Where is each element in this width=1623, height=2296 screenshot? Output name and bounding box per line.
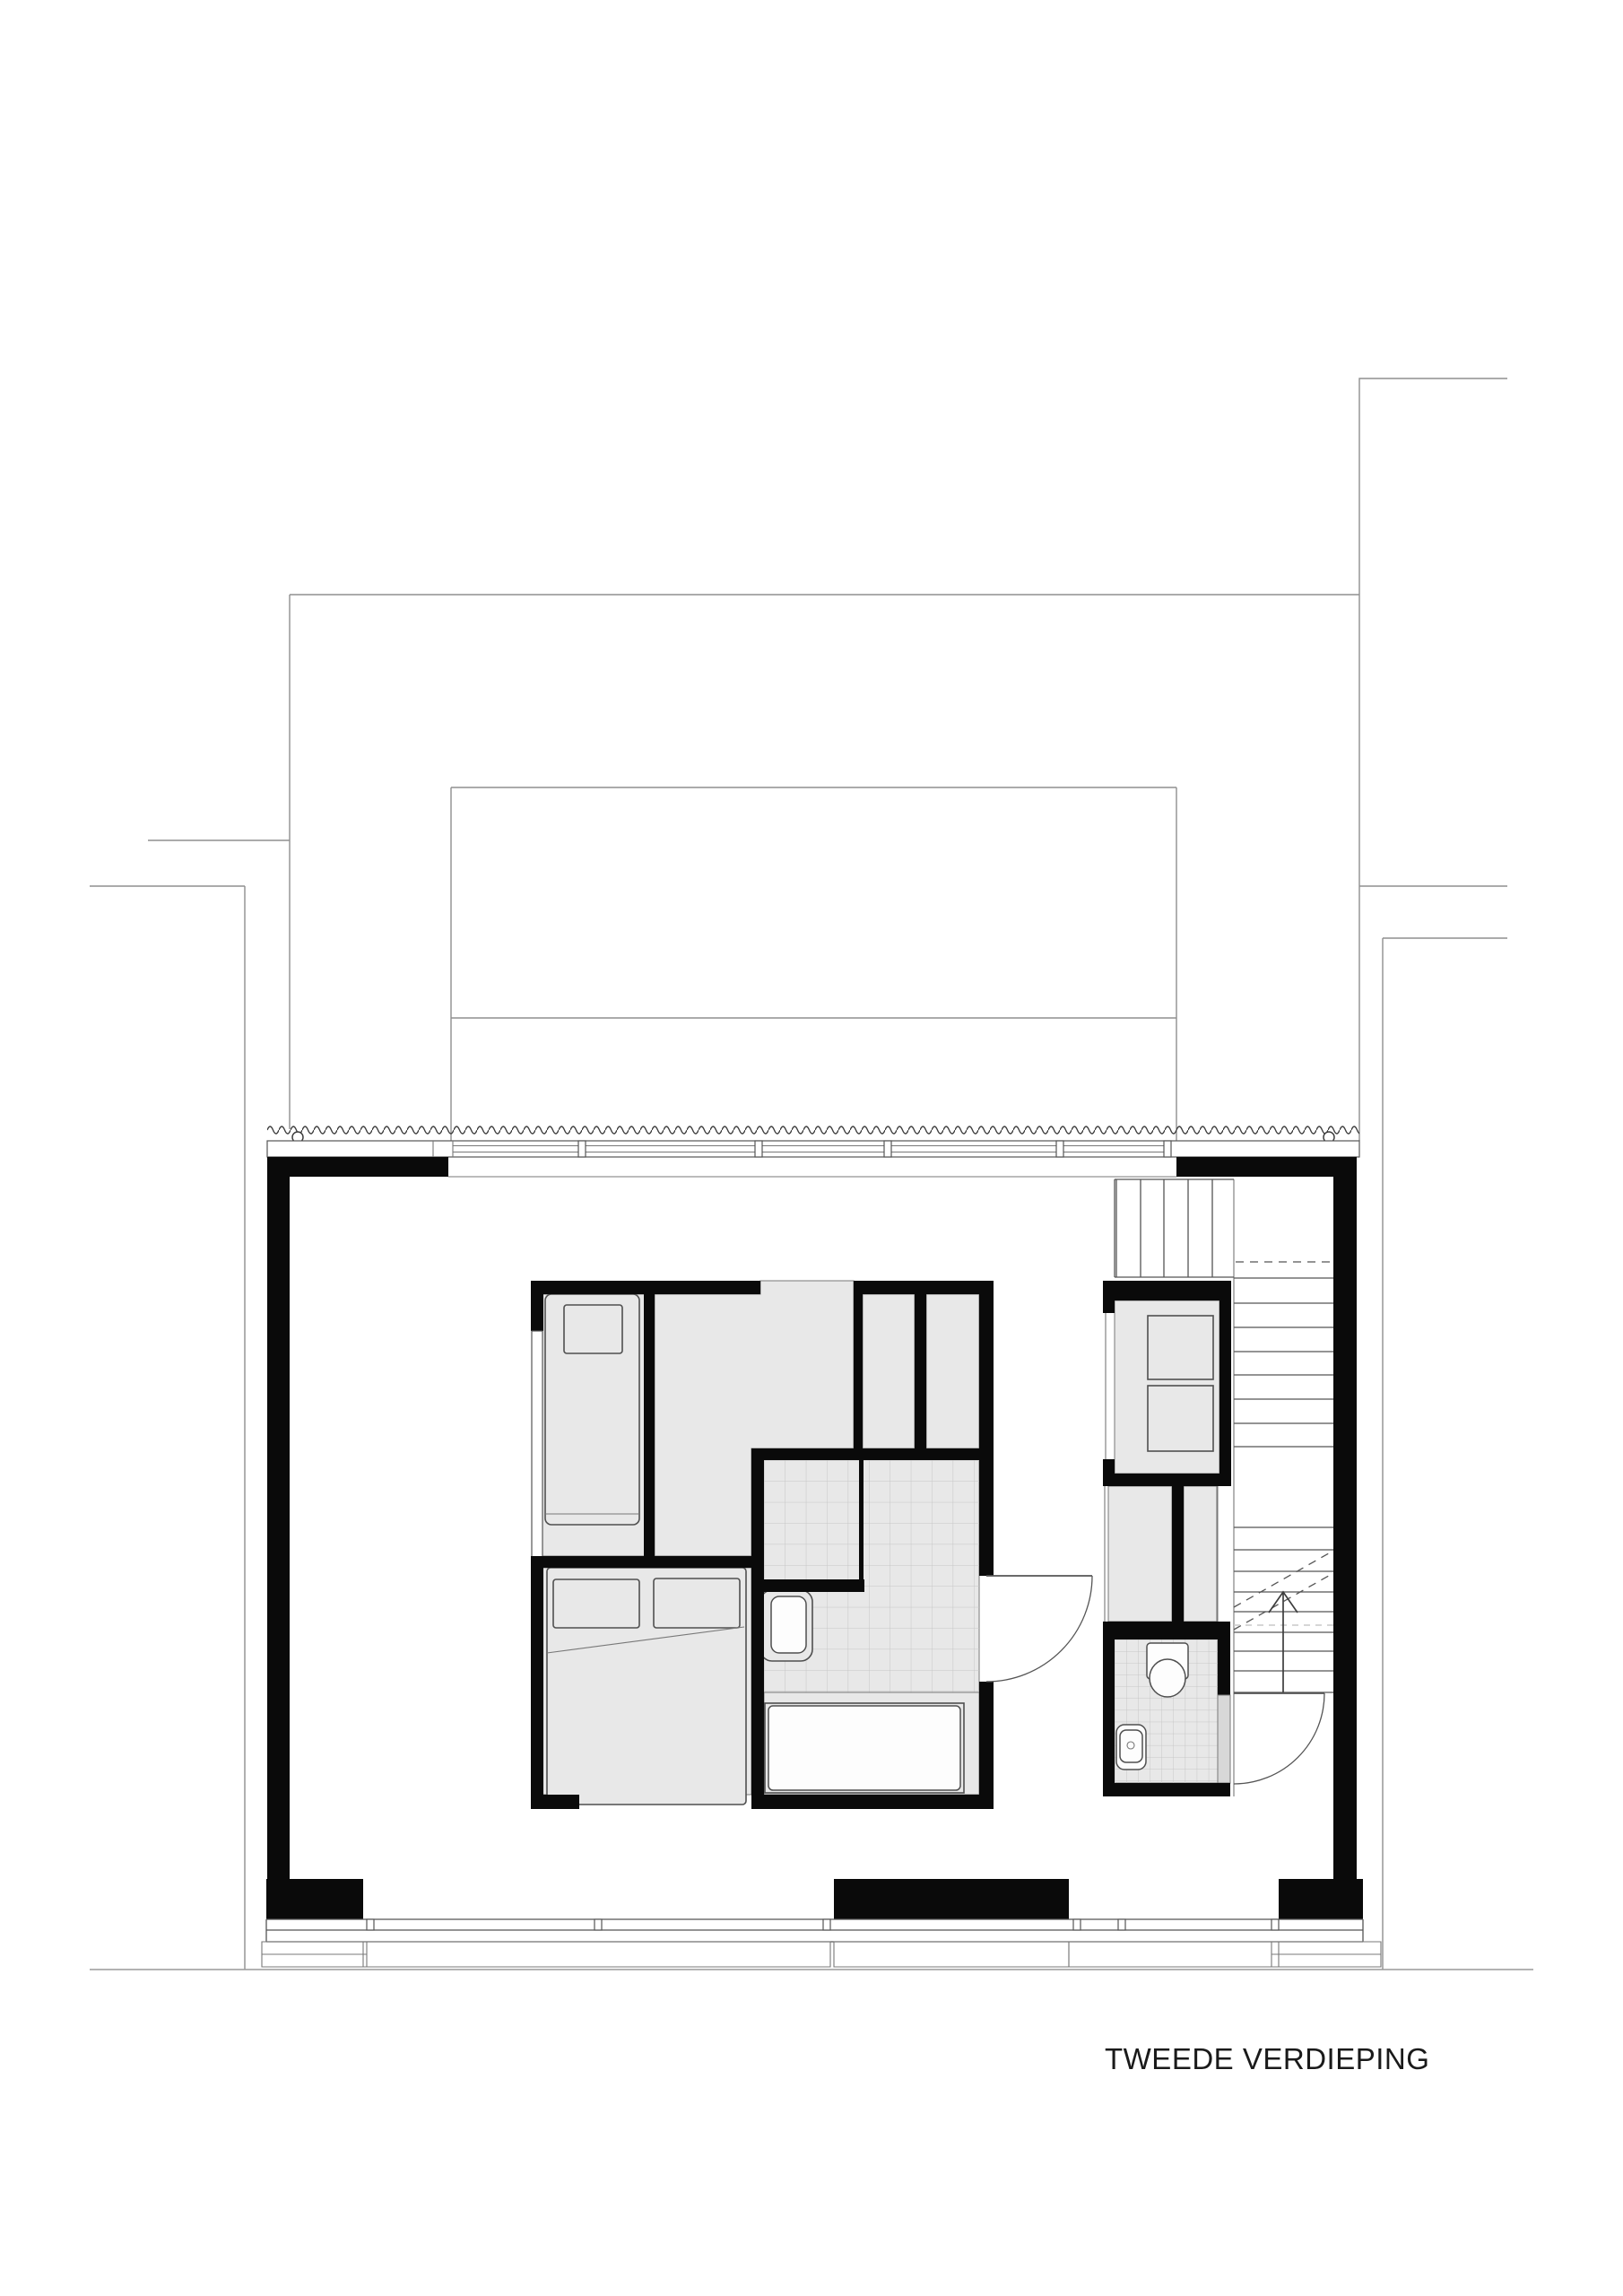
bathroom-sink-basin	[771, 1596, 806, 1653]
wc-bottom-wall	[1103, 1783, 1230, 1796]
shower-bottom-wall	[751, 1579, 864, 1592]
exterior-top-wall	[267, 1141, 1359, 1177]
bottom-sill-boxes	[262, 1942, 1381, 1967]
bathroom-top-wall	[751, 1448, 994, 1460]
block-right-wall-lower	[979, 1682, 994, 1809]
floor-plan-sheet: TWEEDE VERDIEPING	[0, 0, 1623, 2296]
stair-direction-arrow	[1269, 1592, 1298, 1692]
left-exterior-wall	[267, 1177, 290, 1879]
wall-bedroom-dressing	[644, 1281, 655, 1568]
utility-left-corner-upper	[1103, 1300, 1115, 1313]
wall-dressing-closet	[854, 1281, 863, 1448]
storage-left-floor	[1108, 1486, 1172, 1622]
bottom-pier-right	[1279, 1879, 1363, 1919]
top-window-band	[267, 1141, 1359, 1157]
closet-room-a-floor	[863, 1294, 915, 1448]
wc-sink-basin	[1120, 1730, 1142, 1762]
wc-left-wall	[1103, 1639, 1115, 1796]
single-bed-pillow	[564, 1305, 622, 1353]
block-right-wall-mid	[979, 1448, 994, 1576]
bathroom-door-swing	[986, 1576, 1092, 1682]
bottom-window-mullions	[367, 1919, 1279, 1930]
block-left-wall-lower	[531, 1566, 543, 1809]
block-bottom-wall-right	[751, 1795, 994, 1809]
wall-bedrooms-divider	[531, 1556, 762, 1568]
context-lower-roof-outline	[451, 787, 1176, 1141]
utility-bottom-wall	[1103, 1474, 1231, 1486]
bottom-pier-left	[266, 1879, 363, 1919]
context-right-boundary	[1383, 938, 1507, 1970]
right-exterior-wall	[1333, 1177, 1357, 1879]
context-rear-building-outline	[290, 595, 1359, 1129]
washer-unit	[1148, 1316, 1213, 1379]
wc-right-wall	[1218, 1639, 1230, 1695]
stair-upper-flight	[1115, 1179, 1234, 1277]
wall-bedroom-bathroom	[751, 1448, 764, 1809]
storage-divider-wall	[1172, 1486, 1184, 1622]
wall-closet-divider	[915, 1281, 926, 1448]
double-bed-pillow-left	[553, 1579, 639, 1628]
corrugated-roofline	[267, 1123, 1359, 1135]
floor-plan-drawing: TWEEDE VERDIEPING	[0, 0, 1623, 2296]
roof-edge	[267, 1123, 1359, 1143]
stair-door-swing	[1234, 1693, 1324, 1784]
block-right-wall-upper	[979, 1281, 994, 1448]
floor-label: TWEEDE VERDIEPING	[1105, 2042, 1429, 2075]
utility-right-wall	[1219, 1281, 1231, 1486]
utility-top-wall	[1103, 1281, 1231, 1300]
bottom-window-band	[266, 1919, 1363, 1942]
context-left-boundary	[90, 886, 245, 1970]
toilet-bowl	[1150, 1659, 1185, 1697]
bottom-pier-middle	[834, 1879, 1069, 1919]
context-right-building-outline	[1359, 378, 1507, 1141]
bathtub-inner	[768, 1706, 960, 1790]
block-bottom-wall-left	[531, 1795, 579, 1809]
block-left-wardrobe-strip	[532, 1331, 542, 1566]
dryer-unit	[1148, 1386, 1213, 1451]
exterior-bottom-wall	[262, 1879, 1381, 1967]
top-wall-right-segment	[1176, 1157, 1357, 1177]
closet-room-b-floor	[926, 1294, 979, 1448]
block-left-wall-upper	[531, 1281, 543, 1331]
wc-top-wall	[1103, 1622, 1230, 1639]
double-bed-pillow-right	[654, 1578, 740, 1628]
shower-partition	[859, 1460, 864, 1579]
storage-right-floor	[1184, 1486, 1218, 1622]
wc-glass-partition	[1218, 1695, 1230, 1783]
top-wall-left-segment	[267, 1157, 448, 1177]
